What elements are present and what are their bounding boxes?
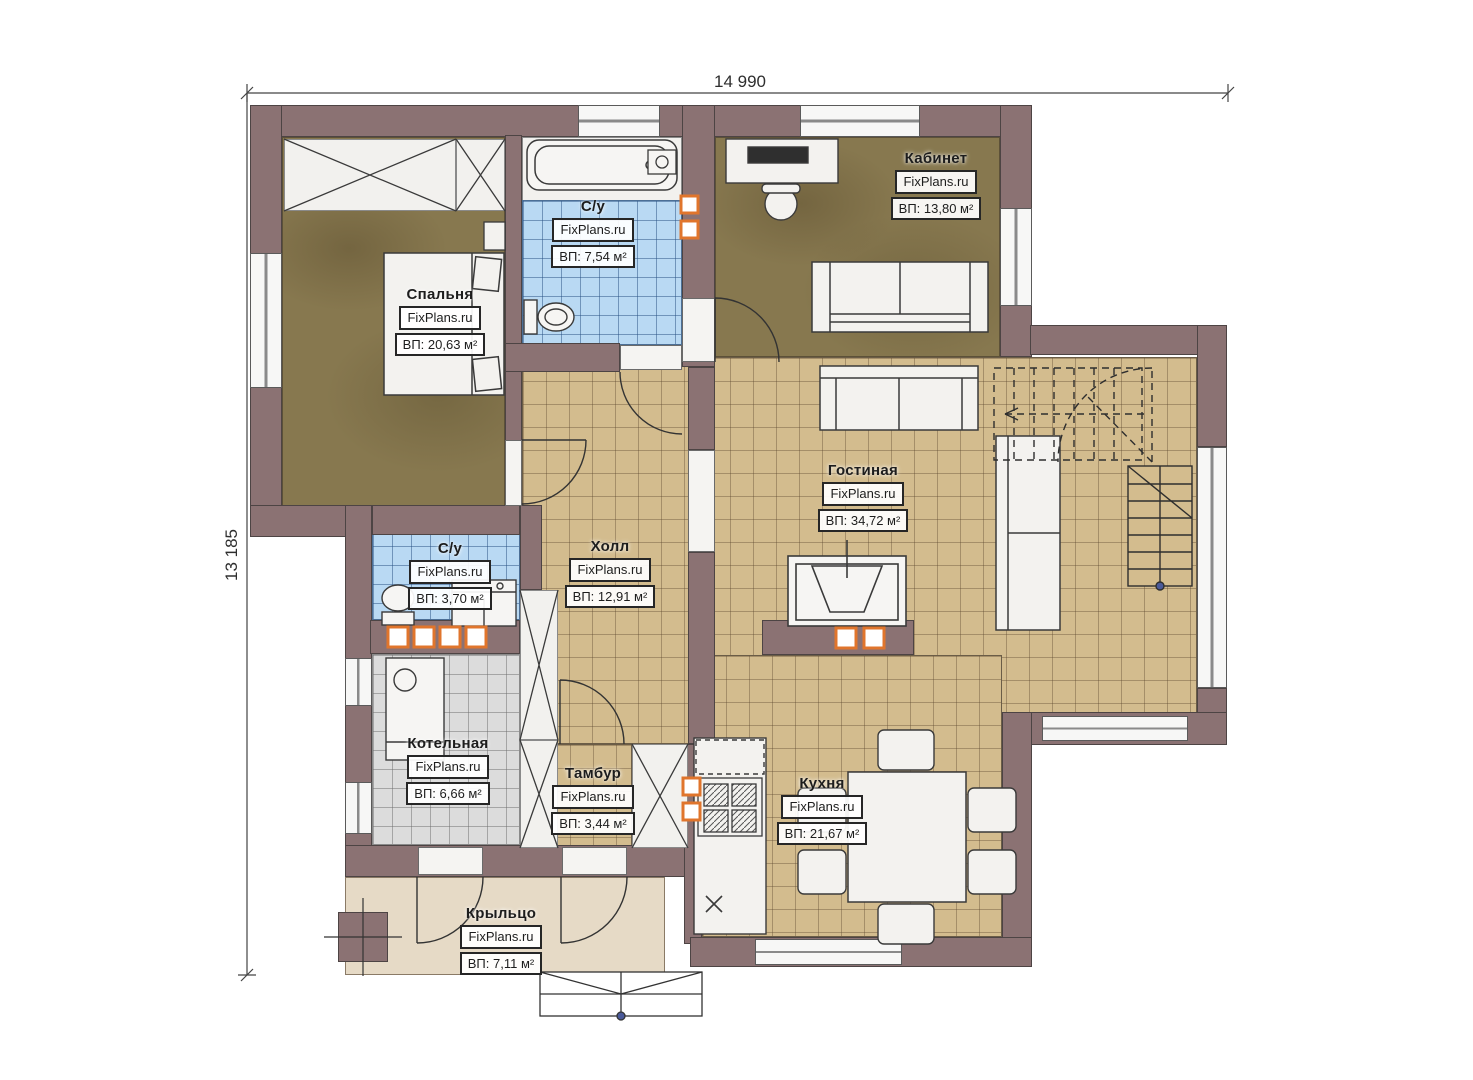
door-opening	[682, 298, 715, 362]
wall	[345, 845, 692, 877]
vent-wall	[370, 620, 520, 654]
room-name: Кухня	[799, 775, 844, 792]
room-area: ВП: 6,66 м²	[406, 782, 489, 806]
room-label-porch: Крыльцо FixPlans.ru ВП: 7,11 м²	[446, 905, 556, 975]
room-name: Котельная	[407, 735, 488, 752]
room-label-bedroom: Спальня FixPlans.ru ВП: 20,63 м²	[385, 286, 495, 356]
brand-watermark: FixPlans.ru	[781, 795, 862, 819]
window	[1000, 208, 1032, 306]
room-name: Крыльцо	[466, 905, 536, 922]
dimension-height-label: 13 185	[222, 495, 242, 615]
room-name: С/у	[581, 198, 605, 215]
room-area: ВП: 13,80 м²	[891, 197, 982, 221]
room-label-bathroom2: С/у FixPlans.ru ВП: 3,70 м²	[398, 540, 502, 610]
window	[755, 939, 902, 965]
brand-watermark: FixPlans.ru	[407, 755, 488, 779]
closet	[520, 590, 558, 740]
room-name: Спальня	[407, 286, 474, 303]
wall	[688, 552, 715, 744]
bathroom1-tub-zone-floor	[522, 137, 682, 203]
window	[345, 658, 372, 706]
brand-watermark: FixPlans.ru	[552, 218, 633, 242]
room-label-living-room: Гостиная FixPlans.ru ВП: 34,72 м²	[808, 462, 918, 532]
door-opening	[620, 345, 682, 370]
room-name: Тамбур	[565, 765, 621, 782]
room-area: ВП: 20,63 м²	[395, 333, 486, 357]
door-opening	[418, 847, 483, 875]
hall-living-opening	[688, 450, 715, 552]
room-area: ВП: 3,44 м²	[551, 812, 634, 836]
room-area: ВП: 21,67 м²	[777, 822, 868, 846]
room-label-office: Кабинет FixPlans.ru ВП: 13,80 м²	[882, 150, 990, 220]
window	[578, 105, 660, 137]
window	[345, 782, 372, 834]
room-area: ВП: 34,72 м²	[818, 509, 909, 533]
room-area: ВП: 12,91 м²	[565, 585, 656, 609]
room-label-hall: Холл FixPlans.ru ВП: 12,91 м²	[558, 538, 662, 608]
entry-steps	[540, 972, 702, 1020]
fireplace-wall	[762, 620, 914, 655]
room-name: Гостиная	[828, 462, 898, 479]
window	[800, 105, 920, 137]
wall	[1197, 325, 1227, 447]
room-label-vestibule: Тамбур FixPlans.ru ВП: 3,44 м²	[541, 765, 645, 835]
window	[1197, 447, 1227, 688]
wall	[688, 367, 715, 450]
window	[1042, 716, 1188, 741]
wall	[520, 505, 542, 590]
window	[250, 253, 282, 388]
brand-watermark: FixPlans.ru	[460, 925, 541, 949]
room-label-boiler-room: Котельная FixPlans.ru ВП: 6,66 м²	[392, 735, 504, 805]
brand-watermark: FixPlans.ru	[409, 560, 490, 584]
room-label-kitchen: Кухня FixPlans.ru ВП: 21,67 м²	[768, 775, 876, 845]
door-opening	[562, 847, 627, 875]
wall	[1002, 712, 1032, 967]
closet	[456, 139, 505, 211]
wall	[505, 343, 620, 372]
floor-plan: 14 990 13 185 Спальня FixPlans.ru ВП: 20…	[0, 0, 1473, 1080]
room-name: Кабинет	[905, 150, 968, 167]
room-area: ВП: 7,54 м²	[551, 245, 634, 269]
wardrobe	[284, 139, 456, 211]
brand-watermark: FixPlans.ru	[822, 482, 903, 506]
room-name: С/у	[438, 540, 462, 557]
wall	[372, 505, 520, 535]
dimension-width-label: 14 990	[690, 72, 790, 92]
room-label-bathroom1: С/у FixPlans.ru ВП: 7,54 м²	[543, 198, 643, 268]
brand-watermark: FixPlans.ru	[895, 170, 976, 194]
porch-column	[338, 912, 388, 962]
door-opening	[505, 440, 522, 506]
room-name: Холл	[591, 538, 630, 555]
brand-watermark: FixPlans.ru	[552, 785, 633, 809]
brand-watermark: FixPlans.ru	[569, 558, 650, 582]
room-area: ВП: 3,70 м²	[408, 587, 491, 611]
room-area: ВП: 7,11 м²	[460, 952, 542, 976]
brand-watermark: FixPlans.ru	[399, 306, 480, 330]
